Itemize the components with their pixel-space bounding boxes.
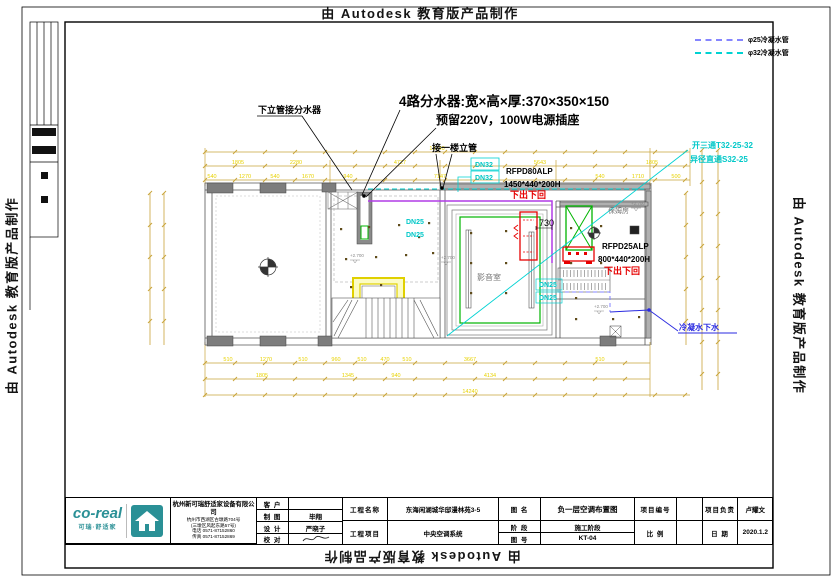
label-first-floor-riser: 接一楼立管 — [432, 142, 477, 153]
check-signature — [289, 534, 343, 544]
label-reducer: 异径直通S32-25 — [690, 154, 748, 164]
dim-label: 1805 — [646, 160, 658, 166]
label-unit1-model: RFPD80ALP — [506, 167, 553, 176]
dim-label: 1270 — [239, 174, 251, 180]
level-mark: +2.700 — [594, 304, 608, 309]
legend-label: φ25冷凝水管 — [748, 35, 789, 45]
project-no-label: 项目编号 — [635, 498, 677, 521]
draft-label: 制 图 — [257, 510, 289, 522]
dim-label: 510 — [298, 357, 307, 363]
dim-label: 4134 — [484, 373, 496, 379]
design-value: 严晓子 — [289, 522, 343, 534]
draft-value: 毕翔 — [289, 510, 343, 522]
label-dn32-b: DN32 — [475, 175, 493, 182]
dim-label: 510 — [595, 357, 604, 363]
drawing-no-label: 图 号 — [499, 533, 541, 544]
drawing-no-value: KT-04 — [541, 533, 635, 544]
scale-label: 比 例 — [635, 521, 677, 544]
dim-label: 470 — [380, 357, 389, 363]
project-name-value: 东海闲湖城华邸漫林苑3-5 — [388, 498, 499, 521]
dim-label: 510 — [402, 357, 411, 363]
lead-value: 卢耀文 — [738, 498, 773, 521]
label-down-riser: 下立管接分水器 — [258, 104, 322, 115]
stage-label: 阶 段 — [499, 521, 541, 533]
dim-label: 1670 — [302, 174, 314, 180]
revision-strip — [30, 22, 58, 310]
house-icon — [131, 505, 163, 537]
legend-item-25: φ25冷凝水管 — [695, 33, 789, 46]
legend-item-32: φ32冷凝水管 — [695, 46, 789, 59]
label-manifold-note1: 4路分水器:宽×高×厚:370×350×150 — [399, 93, 609, 109]
label-unit2-size: 800*440*200H — [598, 255, 650, 264]
label-dn25-c: DN25 — [539, 282, 557, 289]
pipe-25-swatch — [695, 39, 743, 41]
stage-value: 施工阶段 — [541, 521, 635, 533]
dim-label: 2280 — [290, 160, 302, 166]
label-room-nanny: 保姆房 — [608, 206, 629, 215]
label-dn25-d: DN25 — [539, 295, 557, 302]
dim-label: 940 — [391, 373, 400, 379]
level-mark: +2.700 — [441, 255, 455, 260]
dim-label: 540 — [270, 174, 279, 180]
co-real-logo: co-real 可瑞·舒适家 — [73, 507, 122, 535]
label-dn32-a: DN32 — [475, 162, 493, 169]
condensate-pipe-25 — [558, 292, 610, 312]
dim-label: 500 — [671, 174, 680, 180]
dim-label: 5643 — [534, 160, 546, 166]
company-name: 杭州新可瑞舒适家设备有限公司 — [171, 501, 256, 517]
fan-coil-unit-1 — [514, 212, 537, 260]
project-no-value — [677, 498, 703, 521]
label-unit2-model: RFPD25ALP — [602, 242, 649, 251]
date-label: 日 期 — [703, 521, 738, 544]
project-name-label: 工程名称 — [343, 498, 388, 521]
label-unit1-flow: 下出下回 — [510, 189, 546, 200]
design-label: 设 计 — [257, 522, 289, 534]
level-mark: +2.700 — [631, 201, 645, 206]
check-label: 校 对 — [257, 534, 289, 544]
label-condensate-drain: 冷凝水下水 — [679, 322, 720, 332]
label-unit2-flow: 下出下回 — [604, 265, 640, 276]
logo-cell: co-real 可瑞·舒适家 — [66, 498, 171, 544]
annotation-texts: 下立管接分水器 4路分水器:宽×高×厚:370×350×150 预留220V，1… — [258, 93, 753, 332]
dim-label: 960 — [331, 357, 340, 363]
title-block: co-real 可瑞·舒适家 杭州新可瑞舒适家设备有限公司 杭州市西湖区古墩路7… — [65, 497, 773, 545]
project-item-value: 中央空调系统 — [388, 521, 499, 544]
pipe-32-swatch — [695, 52, 743, 54]
room-cinema — [447, 205, 552, 335]
level-mark: +2.700 — [350, 253, 364, 258]
scale-value — [677, 521, 703, 544]
date-value: 2020.1.2 — [738, 521, 773, 544]
floor-plan-drawing: 1424018052280472756431805540127054016709… — [0, 0, 832, 581]
dim-label: 1805 — [232, 160, 244, 166]
dim-label: 540 — [595, 174, 604, 180]
dim-label: 3667 — [464, 357, 476, 363]
dim-label: 14240 — [462, 389, 477, 395]
label-dim-730: 730 — [539, 218, 554, 228]
project-item-label: 工程项目 — [343, 521, 388, 544]
cad-sheet: 由 Autodesk 教育版产品制作 由 Autodesk 教育版产品制作 由 … — [0, 0, 832, 581]
label-tee: 开三通T32-25-32 — [692, 140, 753, 150]
label-room-cinema: 影音室 — [477, 272, 501, 282]
dim-label: 1805 — [256, 373, 268, 379]
label-unit1-size: 1450*440*200H — [504, 180, 561, 189]
company-fax: 传真 0571-87152869 — [192, 534, 235, 540]
client-value — [289, 498, 343, 510]
dim-label: 510 — [223, 357, 232, 363]
label-dn25-b: DN25 — [406, 232, 424, 239]
survey-symbols — [258, 226, 601, 277]
sheet-frame — [22, 7, 830, 575]
legend-label: φ32冷凝水管 — [748, 48, 789, 58]
label-dn25-a: DN25 — [406, 219, 424, 226]
drawing-name-value: 负一层空调布置图 — [541, 498, 635, 521]
client-label: 客 户 — [257, 498, 289, 510]
dim-label: 510 — [357, 357, 366, 363]
drawing-name-label: 图 名 — [499, 498, 541, 521]
dim-label: 1270 — [260, 357, 272, 363]
dim-label: 1345 — [342, 373, 354, 379]
duct-shaft — [357, 192, 372, 244]
dim-label: 1710 — [632, 174, 644, 180]
stairs — [332, 298, 440, 338]
company-info: 杭州新可瑞舒适家设备有限公司 杭州市西湖区古墩路704号 (三墩区风起东路57号… — [171, 498, 257, 544]
closet-hatch — [328, 192, 358, 209]
logo-divider — [126, 504, 127, 538]
legend: φ25冷凝水管 φ32冷凝水管 — [695, 33, 789, 59]
label-manifold-note2: 预留220V，100W电源插座 — [436, 112, 579, 127]
lead-label: 项目负责 — [703, 498, 738, 521]
dim-label: 540 — [207, 174, 216, 180]
